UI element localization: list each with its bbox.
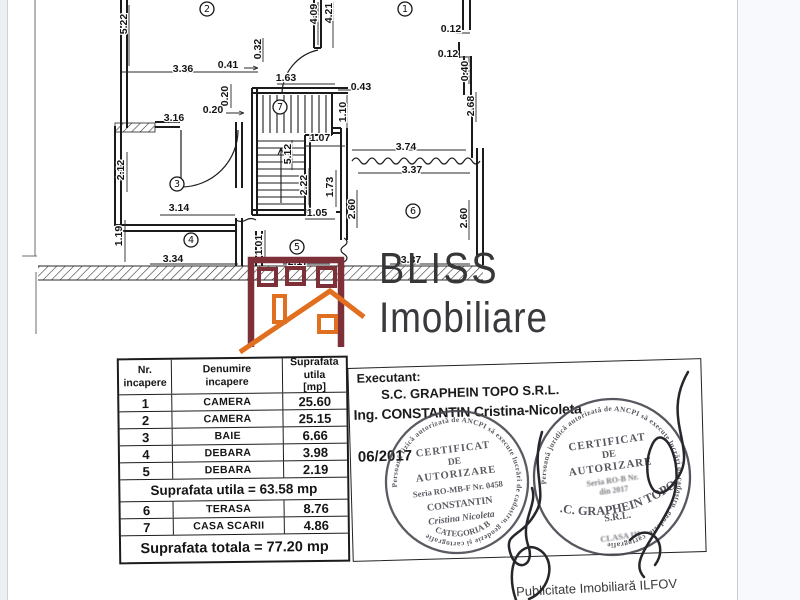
cell-nr: 4	[120, 446, 172, 463]
cell-area: 3.98	[283, 444, 347, 461]
svg-text:3: 3	[174, 179, 180, 190]
cell-area: 25.15	[282, 410, 346, 427]
dimension-label: 0.32	[252, 39, 264, 60]
cell-room: CAMERA	[171, 393, 282, 410]
dimension-label: 3.16	[164, 112, 185, 124]
logo-brand-sub: Imobiliare	[379, 297, 548, 340]
dimension-label: 4.09	[308, 4, 320, 25]
dimension-label: 2.60	[458, 208, 470, 229]
logo-roof	[240, 291, 364, 352]
table-row: 1 CAMERA 25.60	[119, 392, 346, 412]
cell-nr: 1	[119, 395, 171, 412]
room-number: 4	[184, 233, 198, 247]
header-denumire: Denumire incapere	[171, 358, 282, 393]
room-number: 2	[200, 2, 214, 16]
cell-room: TERASA	[173, 500, 284, 517]
dimension-label: 3.74	[396, 141, 417, 153]
table-row: 7 CASA SCARII 4.86	[121, 516, 348, 536]
door-arc	[181, 130, 238, 187]
cell-area: 8.76	[283, 500, 347, 517]
svg-text:2: 2	[204, 4, 210, 15]
floor-plan-walls	[115, 0, 483, 266]
stamp-line: DE	[601, 448, 617, 461]
dimension-label: 1.73	[324, 177, 336, 198]
bottom-signature	[480, 530, 600, 600]
room-number: 6	[406, 204, 420, 218]
dimension-label: 2.68	[465, 96, 477, 117]
svg-text:6: 6	[410, 206, 416, 217]
dimension-label: 4.21	[323, 3, 335, 24]
table-row: 4 DEBARA 3.98	[120, 443, 347, 463]
area-table: Nr. incapere Denumire incapere Suprafata…	[117, 356, 350, 565]
cell-nr: 6	[121, 502, 173, 519]
room-number: 1	[398, 2, 412, 16]
signature-scrawl	[639, 372, 688, 577]
total-row: Suprafata totala = 77.20 mp	[121, 533, 348, 563]
dimension-label: 0.20	[203, 104, 224, 116]
dimension-label: 1.10	[337, 102, 349, 123]
dimension-label: 1.63	[276, 72, 297, 84]
svg-text:4: 4	[188, 235, 194, 246]
dimension-label: 2.12	[115, 160, 127, 181]
dimension-label: 5.12	[282, 144, 294, 165]
room-number: 3	[170, 177, 184, 191]
cell-nr: 3	[120, 429, 172, 446]
table-row: 3 BAIE 6.66	[120, 426, 347, 446]
header-suprafata: Suprafata utila [mp]	[282, 358, 346, 393]
cell-nr: 2	[119, 412, 171, 429]
cell-area: 6.66	[283, 427, 347, 444]
scan-left-margin	[0, 0, 8, 600]
scanned-cadastral-document: 5.223.360.410.321.630.200.203.160.431.10…	[0, 0, 800, 600]
logo-window	[319, 316, 336, 332]
dimension-label: 0.43	[351, 81, 372, 93]
table-row: 6 TERASA 8.76	[120, 499, 347, 519]
dimension-label: 0.12	[441, 23, 462, 35]
scan-edge-line	[22, 0, 37, 334]
table-row: 2 CAMERA 25.15	[119, 409, 346, 429]
cell-room: CAMERA	[171, 410, 282, 427]
svg-text:5: 5	[294, 242, 300, 253]
dimension-label: 3.36	[173, 63, 194, 75]
cell-room: DEBARA	[172, 461, 283, 478]
dimension-label: 0.12	[438, 48, 459, 60]
dimension-label: 1.07	[310, 132, 331, 144]
dimension-label: 1.19	[113, 226, 125, 247]
svg-text:1: 1	[402, 4, 408, 15]
cell-room: CASA SCARII	[173, 517, 284, 534]
wavy-line	[236, 219, 256, 222]
plan-labels: 5.223.360.410.321.630.200.203.160.431.10…	[113, 2, 477, 268]
svg-text:7: 7	[277, 102, 283, 113]
dimension-label: 3.14	[169, 202, 190, 214]
room-number: 5	[290, 240, 304, 254]
dimension-label: 3.34	[163, 253, 184, 265]
cell-room: BAIE	[172, 427, 283, 444]
logo-chimney	[274, 296, 285, 322]
subtotal-row: Suprafata utila = 63.58 mp	[120, 477, 347, 502]
dimension-label: 3.37	[402, 164, 423, 176]
cell-nr: 7	[121, 519, 173, 536]
logo-brand: BLISS	[379, 247, 499, 291]
dimension-label: 1.05	[307, 207, 328, 219]
dimension-label: 2.22	[298, 175, 310, 196]
cell-nr: 5	[120, 463, 172, 480]
table-header-row: Nr. incapere Denumire incapere Suprafata…	[119, 358, 346, 395]
room-number: 7	[273, 100, 287, 114]
dimension-label: 5.22	[118, 14, 130, 35]
dimension-label: 0.41	[218, 59, 239, 71]
cell-room: DEBARA	[172, 444, 283, 461]
cell-area: 4.86	[284, 517, 348, 534]
dimension-label: 2.60	[346, 199, 358, 220]
scan-right-margin	[737, 0, 800, 600]
header-nr: Nr. incapere	[119, 360, 171, 395]
stamp-line: DE	[447, 456, 461, 468]
cell-area: 2.19	[283, 461, 347, 478]
dimension-label: 0.40	[459, 61, 471, 82]
cell-area: 25.60	[282, 393, 346, 410]
table-row: 5 DEBARA 2.19	[120, 460, 347, 480]
dimension-label: 1.01	[253, 235, 265, 256]
